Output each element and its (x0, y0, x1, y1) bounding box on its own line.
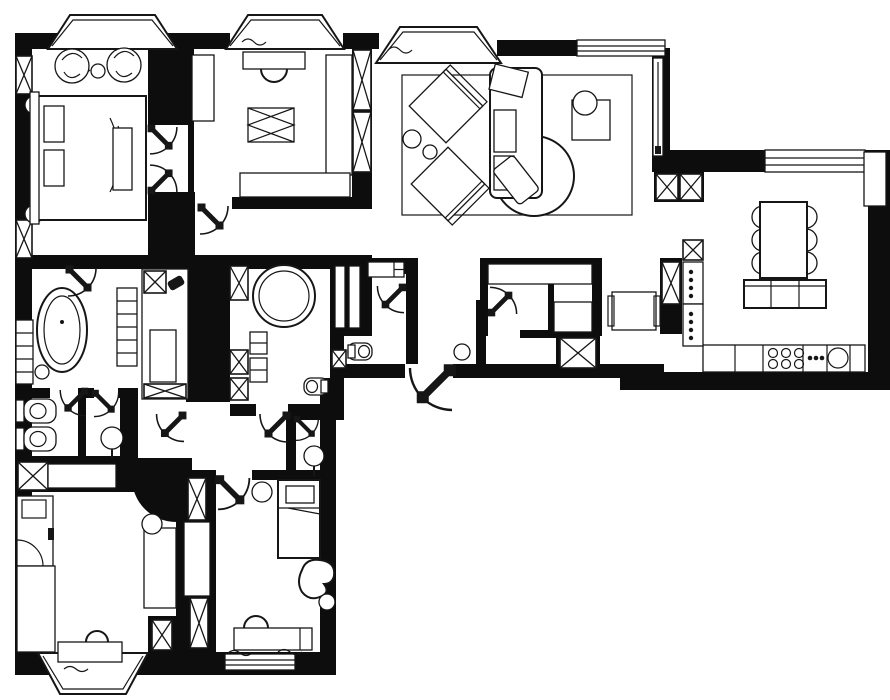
bench-icon (113, 128, 132, 190)
island-icon (248, 108, 294, 142)
sofa-icon (489, 64, 574, 216)
vent-shaft-icon (230, 378, 248, 400)
entrance-door-icon (405, 364, 456, 410)
door-swing-icon (198, 204, 229, 235)
side-table-icon (91, 64, 105, 78)
desk-icon (142, 514, 176, 608)
door-swing-icon (215, 475, 249, 509)
dining-table-icon (752, 202, 817, 278)
room-master-bathroom (16, 288, 137, 384)
door-swing-icon (148, 165, 177, 194)
shelving-icon (117, 288, 137, 366)
stool-icon (252, 482, 272, 502)
wardrobe-cabinet-icon (17, 496, 54, 566)
kitchen-counter (703, 345, 865, 372)
stool-icon (35, 365, 49, 379)
chair-icon (244, 616, 268, 628)
pedestal-sink-icon (454, 344, 470, 360)
chair-icon (261, 69, 287, 82)
vent-shaft-icon (353, 112, 371, 172)
floor-plan-canvas (0, 0, 890, 700)
door-swing-icon (260, 412, 291, 443)
vent-shaft-icon (230, 350, 248, 374)
vent-shaft-icon (332, 350, 346, 368)
hall-table-icon (608, 292, 660, 330)
floor-plan-drawing (0, 0, 890, 700)
pocket-door (653, 58, 663, 156)
vanity-desk-icon (243, 52, 305, 69)
vent-shaft-icon (16, 56, 32, 94)
vent-shaft-icon (152, 620, 172, 650)
room-kitchen-dining (683, 202, 865, 372)
room-hallway (608, 292, 660, 330)
vent-shaft-icon (18, 462, 48, 490)
vent-shaft-icon (560, 338, 596, 368)
side-table-icon (403, 130, 421, 148)
armchair-icon (409, 65, 487, 143)
stool-icon (86, 631, 108, 642)
vent-shaft-icon (16, 220, 32, 258)
shelf-icon (368, 262, 404, 277)
bathtub-icon (37, 288, 87, 372)
chair-icon (142, 514, 162, 534)
tall-units-icon (683, 262, 703, 346)
wall-hung-toilet-icon (16, 399, 56, 423)
vent-shaft-icon (230, 266, 248, 300)
room-small-bedroom (228, 480, 335, 656)
vent-shaft-icon (188, 478, 206, 520)
vent-shaft-icon (680, 174, 702, 200)
vent-shaft-icon (144, 271, 166, 293)
vent-shaft-icon (662, 262, 680, 304)
vent-shaft-icon (144, 384, 186, 398)
door-swing-icon (488, 287, 517, 316)
vent-shaft-icon (656, 174, 678, 200)
wall-hung-toilet-icon (348, 343, 372, 360)
room-washroom (101, 427, 123, 458)
bidet-icon (16, 427, 56, 451)
vent-shaft-icon (683, 240, 703, 260)
side-table-icon (423, 145, 437, 159)
door-swing-icon (148, 125, 177, 154)
sideboard-icon (744, 280, 826, 308)
pedestal-sink-icon (304, 446, 324, 466)
vent-shaft-icon (353, 50, 371, 110)
pedestal-sink-icon (101, 427, 123, 449)
room-master-bedroom (25, 48, 146, 224)
vent-shaft-icon (190, 598, 208, 648)
room-laundry-closet (142, 269, 188, 399)
door-swing-icon (157, 412, 187, 442)
armchair-icon (411, 147, 489, 225)
single-bed-icon (278, 480, 320, 558)
door-swing-icon (377, 284, 406, 313)
door-swing-icon (92, 390, 119, 417)
shelving-icon (16, 320, 33, 384)
soft-mat-icon (17, 566, 55, 652)
desk-icon (234, 616, 312, 650)
room-dressing (242, 39, 305, 142)
room-living (388, 47, 632, 225)
wall-hung-toilet-icon (304, 378, 328, 395)
plant-table-icon (572, 91, 610, 140)
round-shower-icon (253, 265, 315, 327)
